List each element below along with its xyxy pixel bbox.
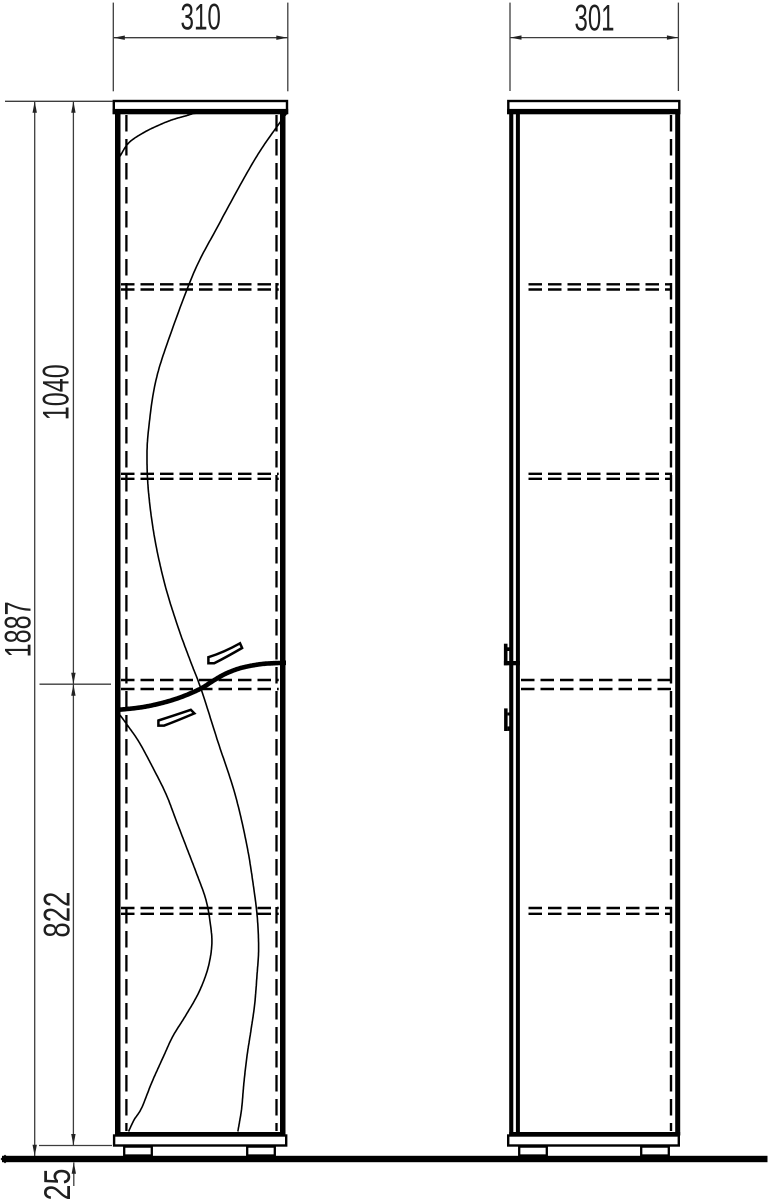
svg-text:301: 301	[575, 0, 615, 39]
svg-text:1040: 1040	[34, 364, 76, 420]
svg-text:1887: 1887	[0, 601, 38, 657]
svg-text:822: 822	[35, 892, 77, 938]
svg-text:25: 25	[36, 1169, 78, 1200]
svg-text:310: 310	[180, 0, 221, 37]
